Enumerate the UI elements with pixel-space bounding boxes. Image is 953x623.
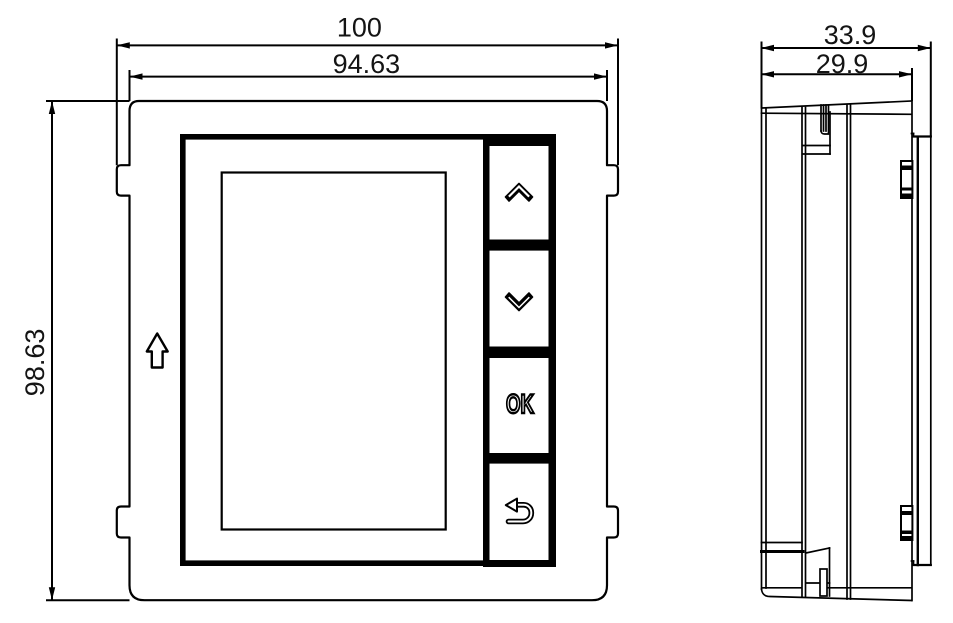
svg-text:100: 100 [337, 13, 382, 43]
svg-text:94.63: 94.63 [333, 49, 401, 79]
svg-text:29.9: 29.9 [816, 49, 869, 79]
svg-text:OK: OK [506, 389, 534, 419]
svg-text:98.63: 98.63 [20, 329, 50, 397]
svg-text:33.9: 33.9 [824, 20, 877, 50]
